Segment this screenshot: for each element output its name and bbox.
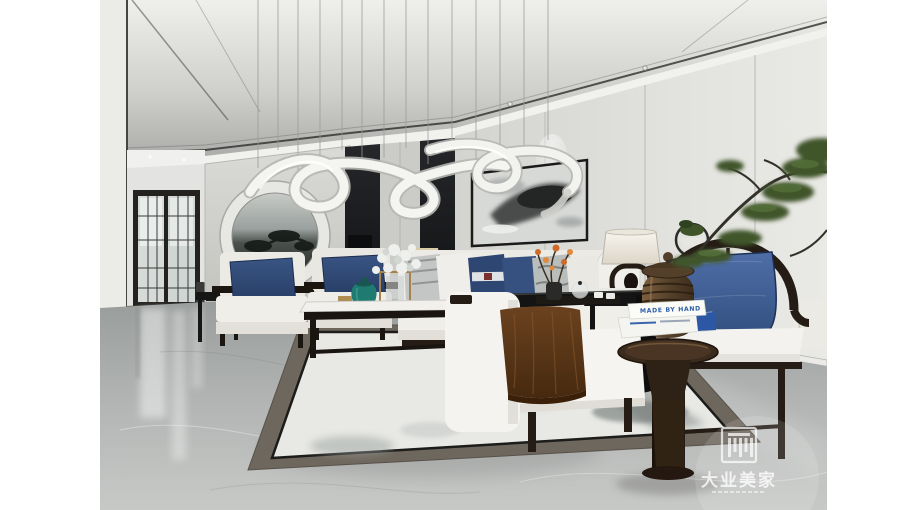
watermark-tagline-marks	[712, 491, 764, 493]
hall-downlight-icon	[148, 155, 151, 158]
watermark-brand-text: 大业美家	[701, 470, 777, 491]
interior-photo: MADE BY HAND	[100, 0, 827, 510]
flower-vase	[546, 282, 562, 300]
left-white-margin	[0, 0, 100, 510]
table-top	[300, 300, 460, 312]
brown-throw	[500, 306, 586, 404]
lattice-door	[133, 190, 205, 310]
tea-cup	[606, 293, 615, 299]
downlight-icon	[643, 66, 647, 70]
armchair-left	[212, 252, 314, 348]
hall-downlight-icon	[182, 158, 185, 161]
downlight-icon	[508, 102, 512, 106]
table-base	[642, 466, 694, 480]
arm-handle	[450, 295, 472, 304]
left-wall	[100, 0, 128, 310]
right-white-margin	[827, 0, 900, 510]
screenshot-canvas: MADE BY HAND	[0, 0, 900, 510]
tea-cup	[594, 292, 603, 298]
seat-cushion	[216, 296, 308, 322]
wall-art-painting	[472, 160, 587, 246]
